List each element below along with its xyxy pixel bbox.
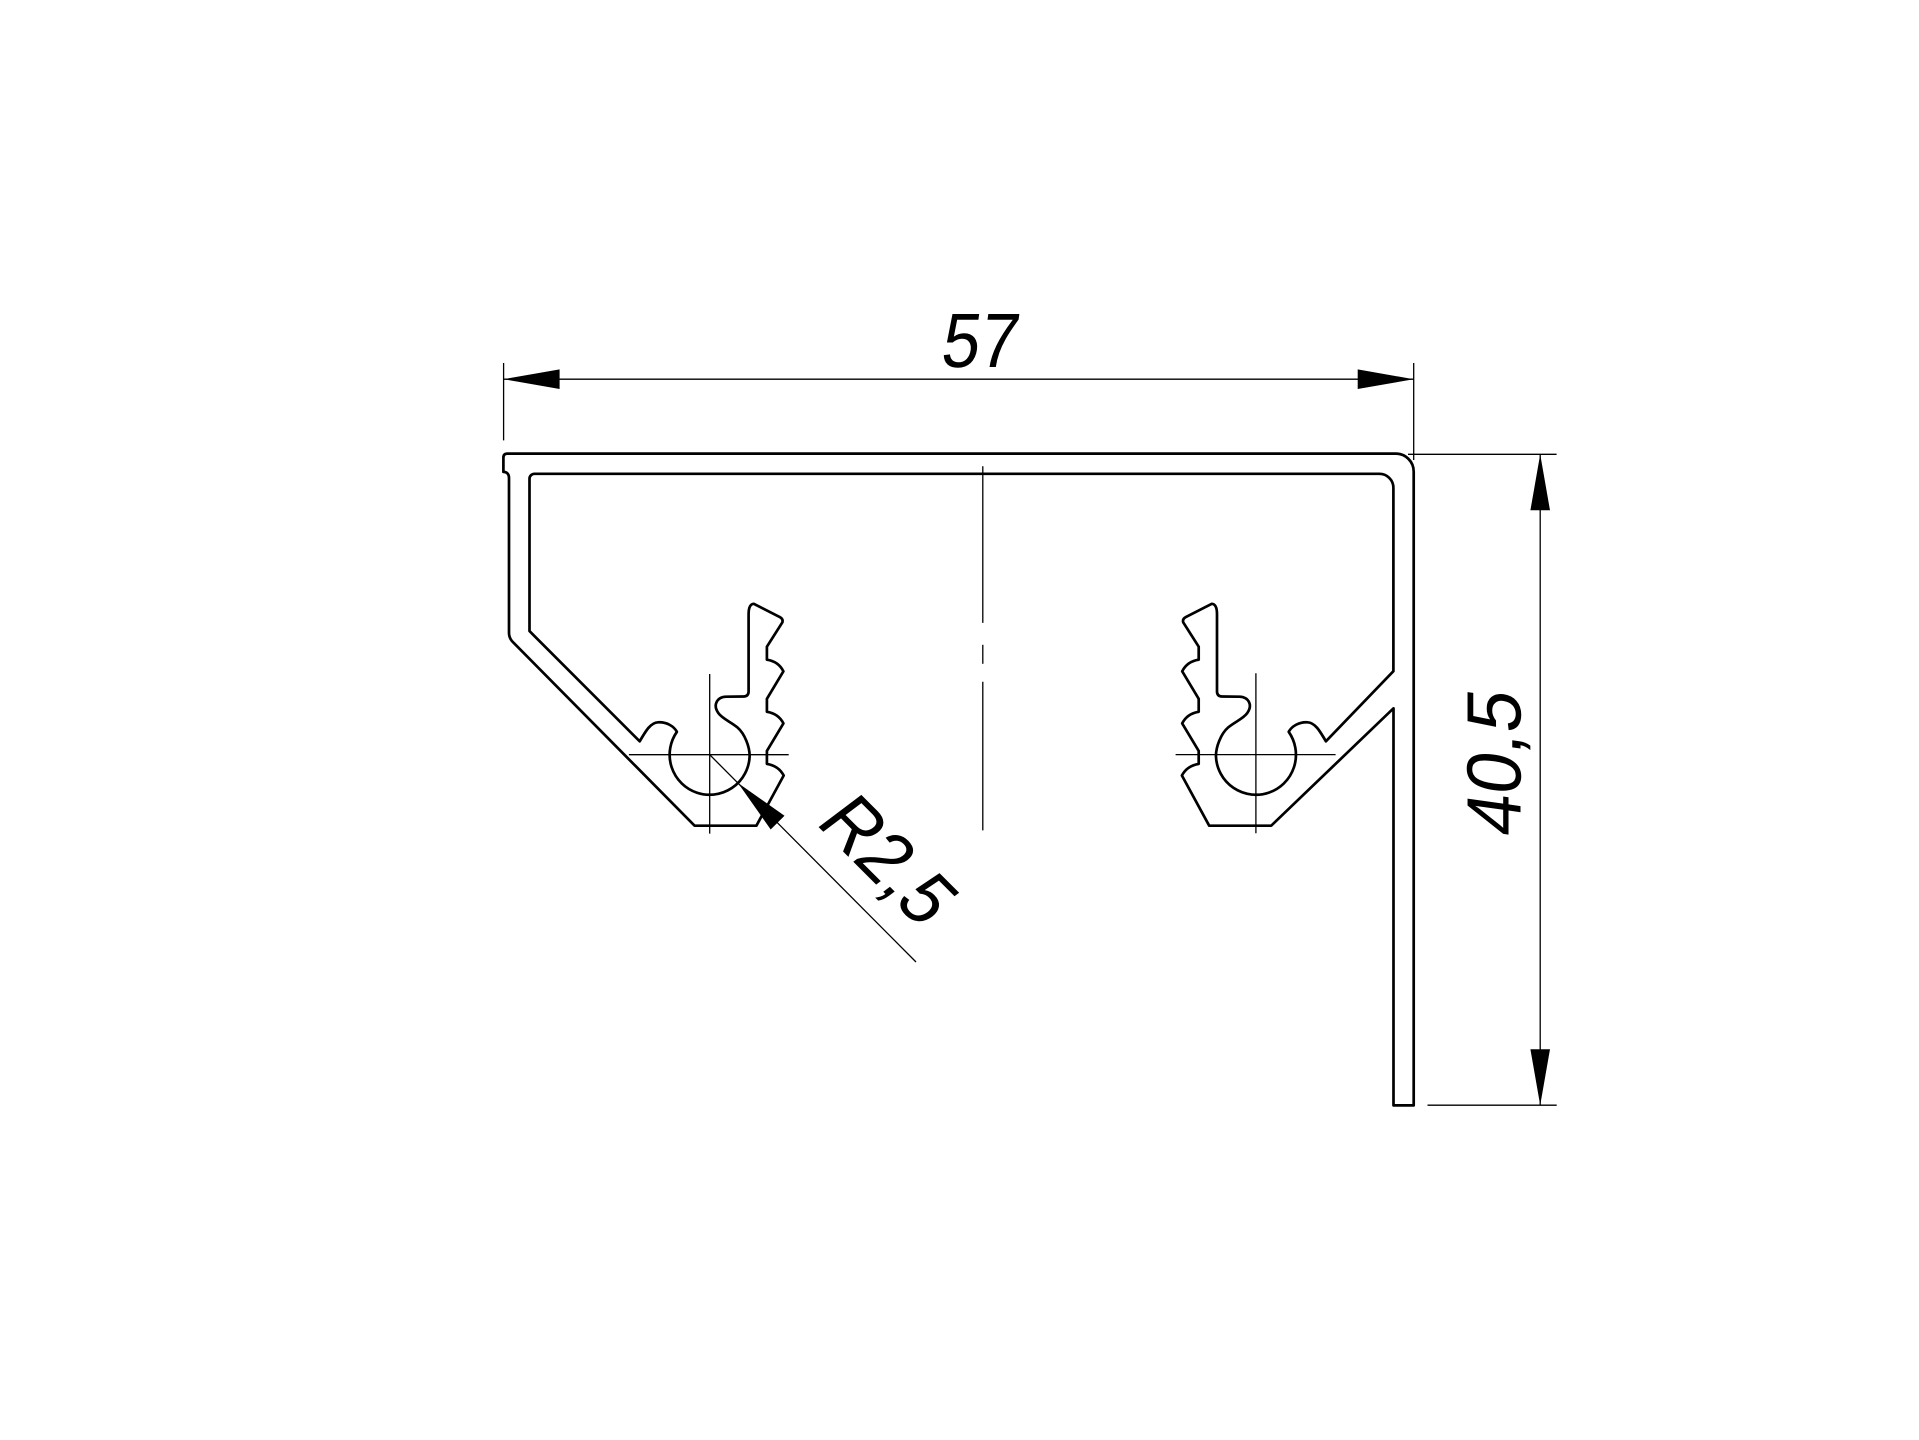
svg-text:57: 57 <box>937 298 1025 384</box>
svg-text:40,5: 40,5 <box>1452 684 1538 841</box>
